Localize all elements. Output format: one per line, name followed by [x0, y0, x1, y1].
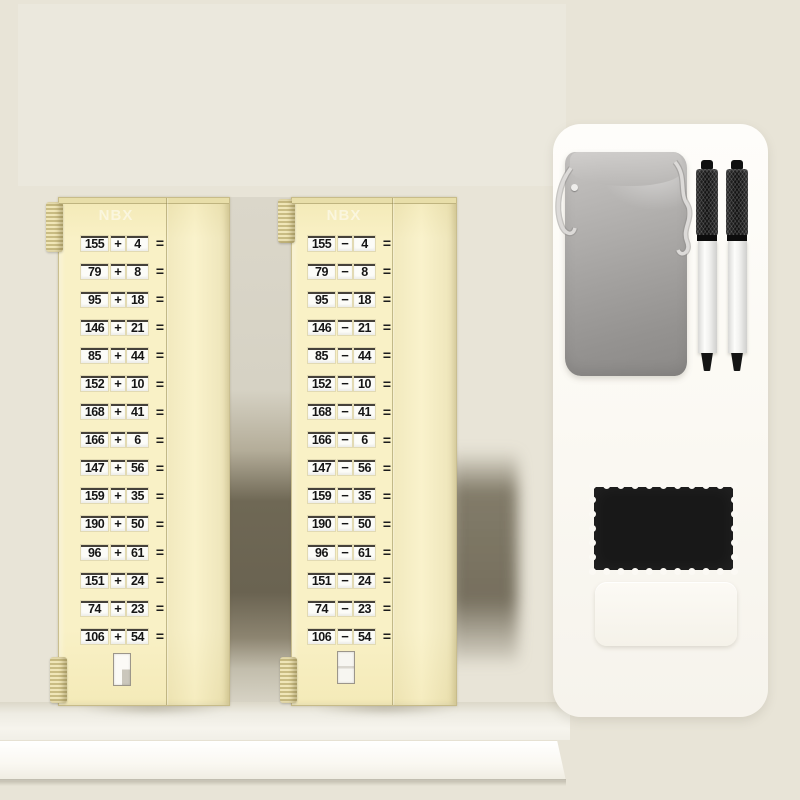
pen-tip	[730, 353, 744, 371]
equals-sign: =	[153, 516, 167, 532]
first-number-tile: 95	[308, 292, 335, 307]
equals-sign: =	[380, 263, 394, 279]
first-number-tile: 190	[308, 516, 335, 531]
operator-tile: +	[111, 404, 125, 419]
second-number-tile: 35	[127, 488, 148, 503]
equals-sign: =	[153, 291, 167, 307]
operator-tile: −	[338, 629, 352, 644]
second-number-tile: 44	[127, 348, 148, 363]
first-number-tile: 159	[308, 488, 335, 503]
equals-sign: =	[380, 235, 394, 251]
pouch-drawstrings	[553, 154, 703, 294]
operator-tile: −	[338, 348, 352, 363]
first-number-tile: 74	[308, 601, 335, 616]
second-number-tile: 50	[127, 516, 148, 531]
first-number-tile: 168	[308, 404, 335, 419]
operator-tile: +	[111, 376, 125, 391]
operator-tile: −	[338, 516, 352, 531]
marker-pen	[695, 160, 719, 371]
pen-cap-button	[701, 160, 713, 169]
math-problem-row: 152−10=	[308, 369, 394, 397]
first-number-tile: 159	[81, 488, 108, 503]
second-number-tile: 54	[354, 629, 375, 644]
operator-tile: −	[338, 292, 352, 307]
second-number-tile: 61	[354, 545, 375, 560]
equals-sign: =	[380, 319, 394, 335]
first-number-tile: 85	[81, 348, 108, 363]
second-number-tile: 4	[354, 236, 375, 251]
first-number-tile: 155	[81, 236, 108, 251]
answer-slider-slot	[113, 653, 131, 686]
first-number-tile: 147	[308, 460, 335, 475]
operator-tile: −	[338, 488, 352, 503]
roller-knob-bottom	[280, 657, 297, 703]
second-number-tile: 41	[127, 404, 148, 419]
first-number-tile: 151	[308, 573, 335, 588]
equals-sign: =	[153, 376, 167, 392]
first-number-tile: 152	[308, 376, 335, 391]
second-number-tile: 4	[127, 236, 148, 251]
math-problem-row: 166+6=	[81, 426, 167, 454]
math-problem-row: 79+8=	[81, 257, 167, 285]
second-number-tile: 18	[354, 292, 375, 307]
second-number-tile: 44	[354, 348, 375, 363]
pen-cap	[696, 169, 718, 235]
whiteboard-eraser	[595, 582, 737, 646]
operator-tile: +	[111, 460, 125, 475]
operator-tile: +	[111, 573, 125, 588]
operator-tile: +	[111, 236, 125, 251]
roller-knob-top	[46, 202, 63, 252]
table-platform-front-edge	[0, 740, 566, 781]
math-problem-row: 147−56=	[308, 454, 394, 482]
first-number-tile: 151	[81, 573, 108, 588]
roller-knob-bottom	[50, 657, 67, 703]
second-number-tile: 24	[354, 573, 375, 588]
equals-sign: =	[380, 572, 394, 588]
subtraction-board: NBX 155−4= 79−8= 95−18= 146−21= 85−44= 1…	[291, 197, 457, 706]
second-number-tile: 23	[127, 601, 148, 616]
equals-sign: =	[380, 404, 394, 420]
math-problem-row: 85−44=	[308, 341, 394, 369]
second-number-tile: 6	[127, 432, 148, 447]
operator-tile: −	[338, 236, 352, 251]
math-problem-row: 168+41=	[81, 398, 167, 426]
addition-board: NBX 155+4= 79+8= 95+18= 146+21= 85+44= 1…	[58, 197, 230, 706]
problem-rows: 155+4= 79+8= 95+18= 146+21= 85+44= 152+1…	[81, 229, 167, 650]
first-number-tile: 79	[308, 264, 335, 279]
equals-sign: =	[380, 291, 394, 307]
math-problem-row: 159−35=	[308, 482, 394, 510]
first-number-tile: 74	[81, 601, 108, 616]
math-problem-row: 96+61=	[81, 538, 167, 566]
roller-knob-top	[278, 199, 295, 243]
operator-tile: −	[338, 432, 352, 447]
math-problem-row: 155−4=	[308, 229, 394, 257]
math-problem-row: 106+54=	[81, 622, 167, 650]
math-problem-row: 159+35=	[81, 482, 167, 510]
equals-sign: =	[153, 235, 167, 251]
math-problem-row: 106−54=	[308, 622, 394, 650]
math-problem-row: 146−21=	[308, 313, 394, 341]
equals-sign: =	[380, 600, 394, 616]
operator-tile: −	[338, 404, 352, 419]
first-number-tile: 85	[308, 348, 335, 363]
operator-tile: +	[111, 292, 125, 307]
math-problem-row: 147+56=	[81, 454, 167, 482]
right-board-cast-shadow	[450, 450, 518, 662]
second-number-tile: 8	[127, 264, 148, 279]
second-number-tile: 21	[127, 320, 148, 335]
equals-sign: =	[153, 600, 167, 616]
equals-sign: =	[153, 544, 167, 560]
first-number-tile: 190	[81, 516, 108, 531]
first-number-tile: 79	[81, 264, 108, 279]
equals-sign: =	[153, 572, 167, 588]
first-number-tile: 106	[308, 629, 335, 644]
first-number-tile: 166	[81, 432, 108, 447]
second-number-tile: 10	[354, 376, 375, 391]
brand-logo: NBX	[294, 207, 394, 224]
first-number-tile: 152	[81, 376, 108, 391]
math-problem-row: 96−61=	[308, 538, 394, 566]
equals-sign: =	[153, 628, 167, 644]
second-number-tile: 35	[354, 488, 375, 503]
math-problem-row: 74−23=	[308, 594, 394, 622]
operator-tile: +	[111, 629, 125, 644]
second-number-tile: 18	[127, 292, 148, 307]
first-number-tile: 166	[308, 432, 335, 447]
second-number-tile: 6	[354, 432, 375, 447]
math-problem-row: 152+10=	[81, 369, 167, 397]
operator-tile: +	[111, 432, 125, 447]
pen-body	[728, 241, 747, 353]
math-problem-row: 168−41=	[308, 398, 394, 426]
math-problem-row: 155+4=	[81, 229, 167, 257]
equals-sign: =	[380, 516, 394, 532]
math-problem-row: 190+50=	[81, 510, 167, 538]
between-boards-shadow	[226, 197, 294, 704]
brand-logo: NBX	[66, 207, 166, 224]
math-problem-row: 95+18=	[81, 285, 167, 313]
operator-tile: −	[338, 376, 352, 391]
equals-sign: =	[380, 460, 394, 476]
operator-tile: −	[338, 264, 352, 279]
operator-tile: −	[338, 545, 352, 560]
first-number-tile: 147	[81, 460, 108, 475]
board-answer-column	[393, 204, 456, 705]
math-problem-row: 79−8=	[308, 257, 394, 285]
second-number-tile: 56	[127, 460, 148, 475]
equals-sign: =	[380, 488, 394, 504]
pen-cap	[726, 169, 748, 235]
operator-tile: +	[111, 264, 125, 279]
math-problem-row: 151+24=	[81, 566, 167, 594]
pen-cap-button	[731, 160, 743, 169]
second-number-tile: 61	[127, 545, 148, 560]
equals-sign: =	[380, 628, 394, 644]
equals-sign: =	[153, 347, 167, 363]
operator-tile: +	[111, 601, 125, 616]
math-problem-row: 151−24=	[308, 566, 394, 594]
equals-sign: =	[380, 376, 394, 392]
operator-tile: −	[338, 460, 352, 475]
cleaning-cloth	[594, 487, 733, 570]
first-number-tile: 95	[81, 292, 108, 307]
second-number-tile: 10	[127, 376, 148, 391]
equals-sign: =	[153, 319, 167, 335]
second-number-tile: 54	[127, 629, 148, 644]
operator-tile: +	[111, 348, 125, 363]
math-problem-row: 146+21=	[81, 313, 167, 341]
problem-rows: 155−4= 79−8= 95−18= 146−21= 85−44= 152−1…	[308, 229, 394, 650]
first-number-tile: 168	[81, 404, 108, 419]
pen-tip	[700, 353, 714, 371]
second-number-tile: 50	[354, 516, 375, 531]
accessories-panel	[553, 124, 768, 717]
second-number-tile: 41	[354, 404, 375, 419]
operator-tile: −	[338, 601, 352, 616]
product-photo-scene: NBX 155+4= 79+8= 95+18= 146+21= 85+44= 1…	[0, 0, 800, 800]
equals-sign: =	[380, 347, 394, 363]
marker-pen	[725, 160, 749, 371]
equals-sign: =	[153, 404, 167, 420]
equals-sign: =	[153, 460, 167, 476]
second-number-tile: 56	[354, 460, 375, 475]
wall-light-patch	[18, 4, 566, 186]
math-problem-row: 74+23=	[81, 594, 167, 622]
math-problem-row: 190−50=	[308, 510, 394, 538]
equals-sign: =	[380, 544, 394, 560]
operator-tile: −	[338, 573, 352, 588]
operator-tile: +	[111, 488, 125, 503]
second-number-tile: 23	[354, 601, 375, 616]
equals-sign: =	[153, 263, 167, 279]
second-number-tile: 21	[354, 320, 375, 335]
equals-sign: =	[380, 432, 394, 448]
first-number-tile: 146	[81, 320, 108, 335]
platform-drop-shadow	[0, 779, 566, 786]
first-number-tile: 146	[308, 320, 335, 335]
equals-sign: =	[153, 488, 167, 504]
operator-tile: +	[111, 516, 125, 531]
math-problem-row: 95−18=	[308, 285, 394, 313]
operator-tile: +	[111, 320, 125, 335]
first-number-tile: 96	[81, 545, 108, 560]
first-number-tile: 106	[81, 629, 108, 644]
equals-sign: =	[153, 432, 167, 448]
second-number-tile: 24	[127, 573, 148, 588]
pen-body	[698, 241, 717, 353]
math-problem-row: 166−6=	[308, 426, 394, 454]
operator-tile: −	[338, 320, 352, 335]
math-problem-row: 85+44=	[81, 341, 167, 369]
operator-tile: +	[111, 545, 125, 560]
answer-slider-slot	[337, 651, 355, 684]
second-number-tile: 8	[354, 264, 375, 279]
board-answer-column	[167, 204, 229, 705]
first-number-tile: 96	[308, 545, 335, 560]
first-number-tile: 155	[308, 236, 335, 251]
